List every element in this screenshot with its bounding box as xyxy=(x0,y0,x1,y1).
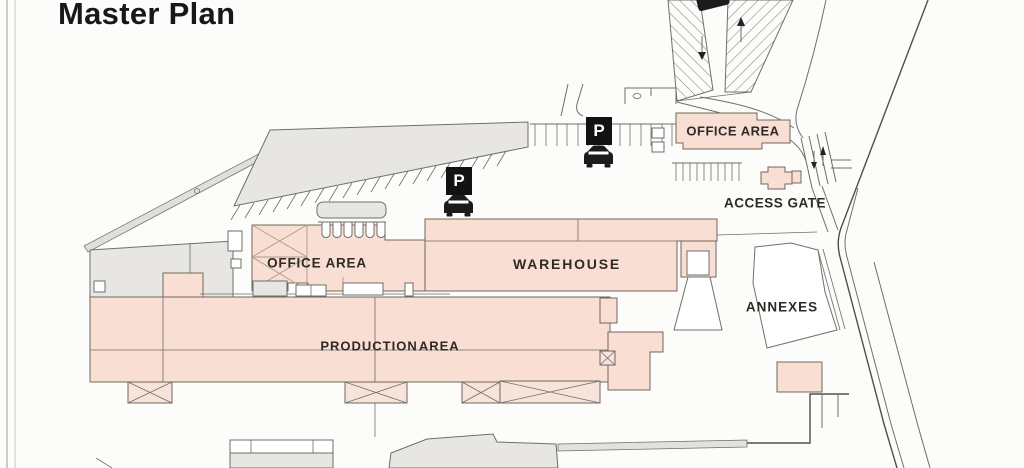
parking-row-upper xyxy=(530,124,697,168)
office-building-left xyxy=(200,202,450,294)
south-boundary xyxy=(747,394,849,443)
production-building xyxy=(90,281,663,437)
label-annexes: ANNEXES xyxy=(746,300,818,315)
annex-hopper xyxy=(674,241,722,330)
label-warehouse: WAREHOUSE xyxy=(513,256,621,272)
warehouse-building xyxy=(425,219,717,291)
bottom-buildings xyxy=(230,434,747,468)
top-parking-lot xyxy=(668,0,793,101)
site-plan-drawing xyxy=(0,0,1024,468)
annexes-building xyxy=(753,243,837,392)
car-icon xyxy=(584,146,613,168)
label-office-area-left: OFFICE AREA xyxy=(267,256,367,271)
label-office-area-top: OFFICE AREA xyxy=(686,124,779,139)
car-icon xyxy=(696,0,730,12)
label-production-area: PRODUCTION AREA xyxy=(320,339,459,354)
master-plan-page: Master Plan OFFICE AREA ACCESS GATE OFFI… xyxy=(0,0,1024,468)
parking-sign-icon: P xyxy=(586,117,612,145)
parking-sign-icon: P xyxy=(446,167,472,195)
page-title: Master Plan xyxy=(58,0,235,32)
car-icon xyxy=(444,195,473,217)
west-wedge-building xyxy=(90,241,233,297)
label-access-gate: ACCESS GATE xyxy=(724,196,826,211)
canopy-building xyxy=(234,122,528,206)
page-border-lines xyxy=(7,0,15,468)
main-road xyxy=(838,0,930,468)
gate-building xyxy=(761,167,801,189)
